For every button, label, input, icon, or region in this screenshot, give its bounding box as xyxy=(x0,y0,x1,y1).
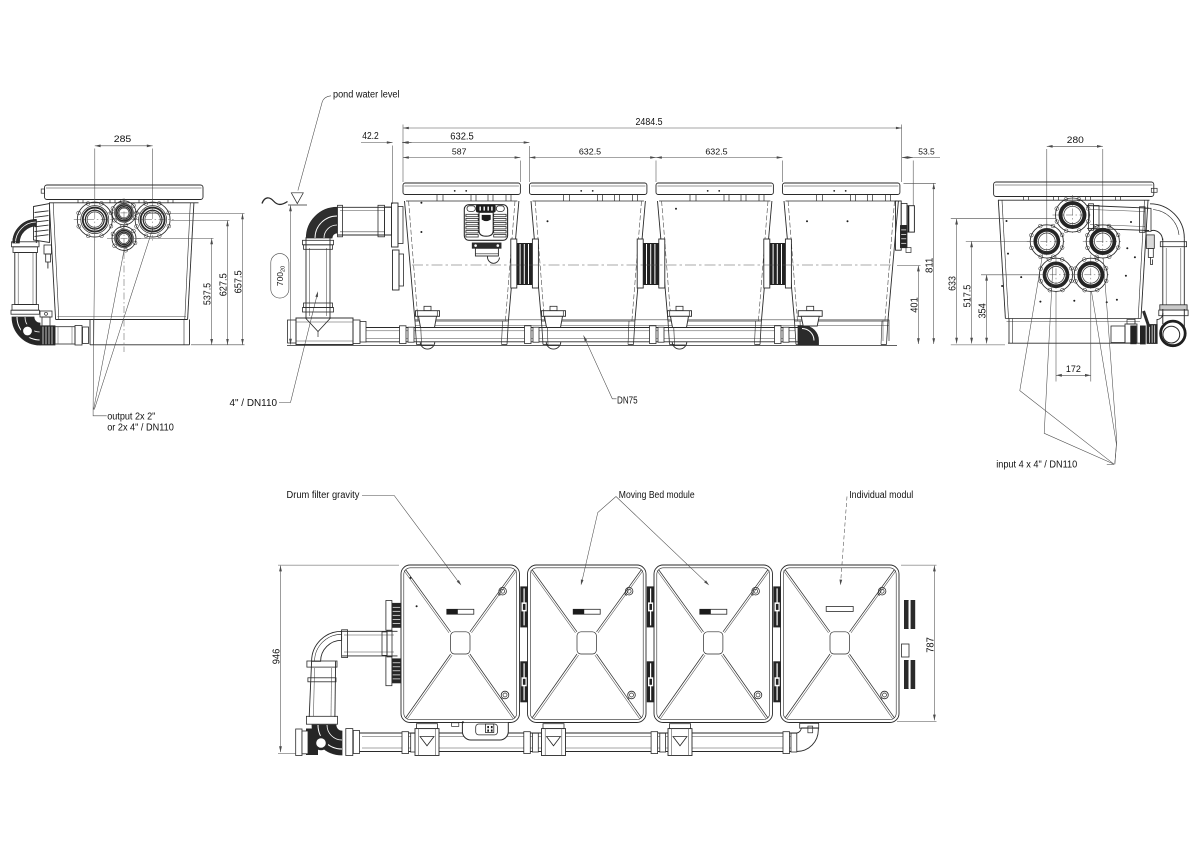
svg-text:946: 946 xyxy=(272,648,283,664)
svg-text:Moving Bed module: Moving Bed module xyxy=(619,490,695,501)
svg-text:Individual modul: Individual modul xyxy=(849,490,913,501)
svg-text:354: 354 xyxy=(978,303,989,319)
svg-text:285: 285 xyxy=(114,134,132,144)
svg-text:633: 633 xyxy=(948,276,959,291)
svg-text:2484.5: 2484.5 xyxy=(636,117,663,128)
svg-text:280: 280 xyxy=(1067,135,1084,145)
svg-text:DN75: DN75 xyxy=(617,395,638,406)
svg-text:Drum filter gravity: Drum filter gravity xyxy=(287,490,360,501)
svg-text:587: 587 xyxy=(452,147,467,157)
svg-text:input 4 x 4" / DN110: input 4 x 4" / DN110 xyxy=(996,460,1078,471)
svg-text:or 2x 4" / DN110: or 2x 4" / DN110 xyxy=(107,423,174,434)
svg-text:53.5: 53.5 xyxy=(918,147,935,157)
svg-text:pond water level: pond water level xyxy=(333,90,400,101)
svg-text:787: 787 xyxy=(925,637,936,653)
svg-text:811: 811 xyxy=(925,257,936,273)
svg-text:632.5: 632.5 xyxy=(579,147,602,157)
svg-text:657.5: 657.5 xyxy=(234,270,245,293)
svg-text:537.5: 537.5 xyxy=(203,283,214,306)
svg-text:output 2x 2": output 2x 2" xyxy=(107,412,156,423)
svg-text:172: 172 xyxy=(1066,364,1081,374)
svg-text:42.2: 42.2 xyxy=(362,131,379,142)
svg-text:632.5: 632.5 xyxy=(450,132,474,143)
svg-text:627.5: 627.5 xyxy=(219,273,230,296)
svg-text:401: 401 xyxy=(909,297,920,313)
svg-text:632.5: 632.5 xyxy=(705,147,728,157)
svg-text:4" / DN110: 4" / DN110 xyxy=(230,398,278,409)
svg-text:517.5: 517.5 xyxy=(963,284,974,307)
